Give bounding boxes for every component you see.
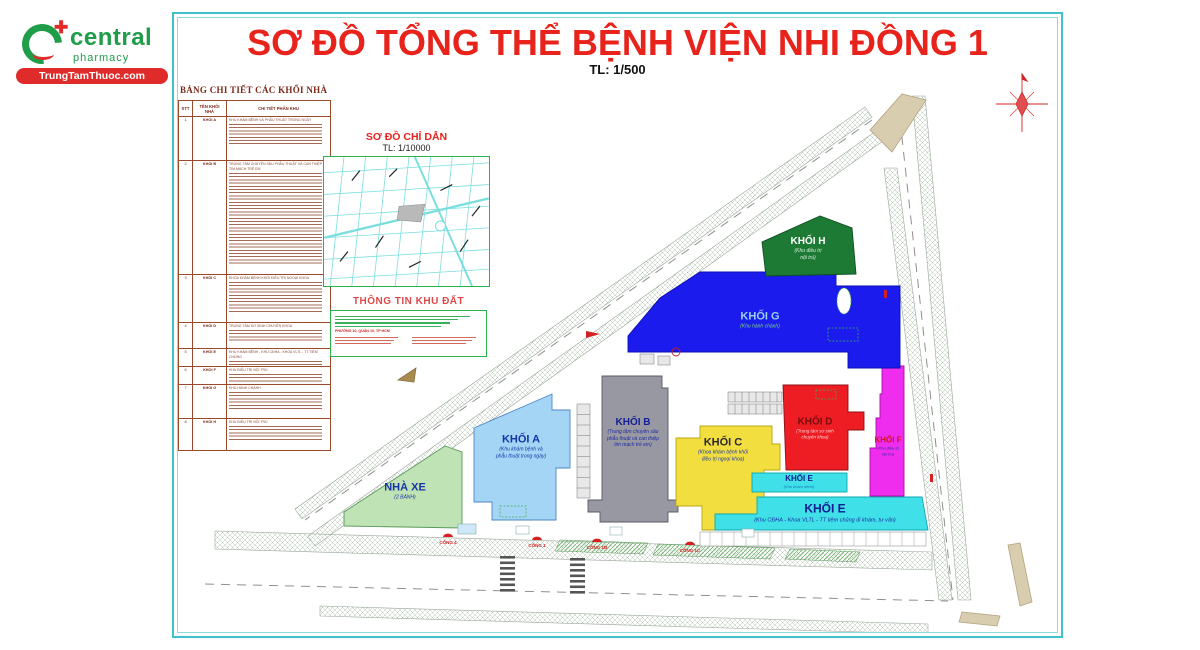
table-row: 4KHỐI DTRUNG TÂM SƠ SINH CHUYÊN KHOA bbox=[179, 323, 331, 349]
table-row: 7KHỐI GKHU HÀNH CHÁNH bbox=[179, 384, 331, 418]
table-row: 8KHỐI HKHU ĐIỀU TRỊ NỘI TRÚ bbox=[179, 418, 331, 450]
zebra-crossings bbox=[500, 556, 585, 594]
gate-4-label: CỔNG 4 bbox=[439, 540, 456, 545]
table-row: 1KHỐI AKHU KHÁM BỆNH VÀ PHẪU THUẬT TRONG… bbox=[179, 117, 331, 161]
block-a-label: KHỐI A(Khu khám bệnh và phẫu thuật trong… bbox=[496, 432, 546, 459]
block-b-shape bbox=[588, 376, 678, 522]
col-name: TÊN KHỐI NHÀ bbox=[193, 101, 227, 117]
parking-house-label: NHÀ XE(2 BÁNH) bbox=[384, 481, 426, 502]
inset-street-map bbox=[323, 156, 490, 287]
legend-header-row: STT TÊN KHỐI NHÀ CHI TIẾT PHÂN KHU bbox=[179, 101, 331, 117]
gate-1-label: CỔNG 1 bbox=[528, 543, 545, 548]
table-row: 3KHỐI CKHOA KHÁM BỆNH KHỐI ĐIỀU TRỊ NGOẠ… bbox=[179, 275, 331, 323]
inset-hospital-site bbox=[397, 204, 425, 222]
block-e2-label: KHỐI E(Khu CĐHA - Khoa VLTL - TT tiêm ch… bbox=[710, 502, 940, 525]
legend-table-heading: BẢNG CHI TIẾT CÁC KHỐI NHÀ bbox=[180, 85, 327, 95]
block-b-label: KHỐI B(Trung tâm chuyên sâu phẫu thuật v… bbox=[607, 416, 659, 449]
gate-1c-label: CỔNG 1C bbox=[680, 548, 701, 553]
logo-tagline: pharmacy bbox=[73, 52, 129, 64]
block-d-label: KHỐI D(Trung tâm sơ sinh chuyên khoa) bbox=[796, 416, 833, 441]
site-info-box: PHƯỜNG 10, QUẬN 10, TP HCM bbox=[330, 310, 487, 357]
inset-map-heading: SƠ ĐỒ CHỈ DẪN bbox=[323, 131, 490, 143]
logo-plus-icon: ✚ bbox=[54, 18, 68, 38]
block-c-label: KHỐI C(Khoa khám bệnh khối điều trị ngoạ… bbox=[698, 435, 748, 462]
col-detail: CHI TIẾT PHÂN KHU bbox=[227, 101, 331, 117]
logo-site-badge: TrungTamThuoc.com bbox=[16, 68, 168, 84]
block-h-label: KHỐI H(Khu điều trị nội trú) bbox=[791, 235, 826, 261]
drawing-scale: TL: 1/500 bbox=[172, 62, 1063, 77]
page-title: SƠ ĐỒ TỔNG THỂ BỆNH VIỆN NHI ĐỒNG 1 bbox=[172, 22, 1063, 64]
table-row: 6KHỐI FKHU ĐIỀU TRỊ NỘI TRÚ bbox=[179, 366, 331, 384]
block-f-label: KHỐI F(Khu điều trị nội trú) bbox=[874, 436, 901, 457]
inset-roundabout bbox=[436, 221, 446, 231]
site-info-details bbox=[335, 335, 482, 347]
site-plan-page: ✚ central pharmacy TrungTamThuoc.com SƠ … bbox=[0, 0, 1200, 650]
compass-rose-icon bbox=[996, 74, 1048, 132]
inset-map-scale: TL: 1/10000 bbox=[323, 143, 490, 153]
helipad-oval bbox=[837, 288, 851, 314]
parking-stall-band bbox=[700, 532, 926, 546]
site-info-heading: THÔNG TIN KHU ĐẤT bbox=[330, 296, 487, 307]
legend-table: STT TÊN KHỐI NHÀ CHI TIẾT PHÂN KHU 1KHỐI… bbox=[178, 100, 331, 451]
table-row: 5KHỐI EKHU KHÁM BỆNH - KHU CĐHA - KHOA V… bbox=[179, 349, 331, 367]
logo-arc-icon bbox=[32, 48, 54, 60]
site-info-address: PHƯỜNG 10, QUẬN 10, TP HCM bbox=[335, 329, 482, 333]
table-row: 2KHỐI BTRUNG TÂM CHUYÊN SÂU PHẪU THUẬT V… bbox=[179, 161, 331, 275]
block-f-shape bbox=[870, 366, 904, 496]
block-g-label: KHỐI G(Khu hành chánh) bbox=[740, 310, 780, 331]
logo-brand: central bbox=[70, 24, 152, 52]
gate-1b-label: CỔNG 1B bbox=[587, 545, 608, 550]
block-e1-label: KHỐI E(Khu khám bệnh) bbox=[784, 474, 815, 490]
col-stt: STT bbox=[179, 101, 193, 117]
central-pharmacy-logo: ✚ central pharmacy TrungTamThuoc.com bbox=[8, 10, 173, 82]
